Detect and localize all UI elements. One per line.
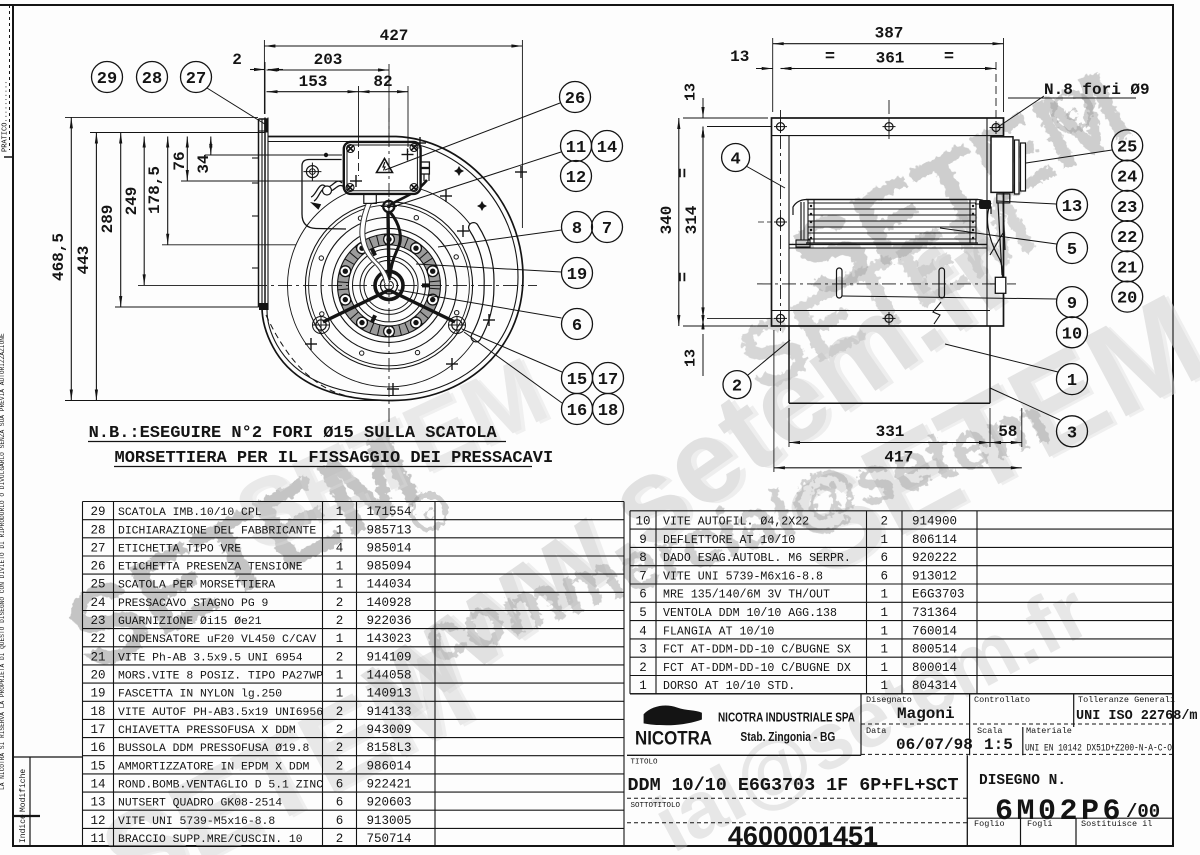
svg-text:806114: 806114 [912,533,957,547]
svg-text:13: 13 [682,83,699,101]
svg-text:=: = [675,168,694,178]
svg-text:314: 314 [683,205,701,234]
svg-text:22: 22 [90,632,105,646]
svg-text:N.B.:ESEGUIRE N°2 FORI Ø15 SUL: N.B.:ESEGUIRE N°2 FORI Ø15 SULLA SCATOLA [89,424,498,443]
svg-text:1: 1 [336,505,344,519]
svg-text:1: 1 [336,669,344,683]
svg-text:Foglio: Foglio [974,819,1005,829]
svg-text:23: 23 [90,614,105,628]
svg-text:24: 24 [90,596,105,610]
svg-text:361: 361 [876,50,905,68]
svg-text:11: 11 [90,832,105,846]
svg-text:1: 1 [880,643,888,657]
svg-text:17: 17 [598,371,618,390]
svg-text:DISEGNO N.: DISEGNO N. [979,773,1066,789]
svg-text:12: 12 [90,814,105,828]
svg-text:4: 4 [336,541,344,555]
svg-text:2: 2 [232,51,242,69]
svg-text:10: 10 [1062,325,1082,344]
svg-text:5: 5 [639,606,647,620]
svg-text:LA NICOTRA SI RISERVA LA PROPR: LA NICOTRA SI RISERVA LA PROPRIETA DI QU… [0,333,6,790]
svg-text:4: 4 [730,151,740,170]
svg-text:13: 13 [682,349,699,367]
svg-text:203: 203 [314,51,343,69]
svg-text:MORSETTIERA PER IL FISSAGGIO D: MORSETTIERA PER IL FISSAGGIO DEI PRESSAC… [115,449,554,468]
svg-text:2: 2 [336,832,344,846]
svg-text:922036: 922036 [367,614,412,628]
svg-text:26: 26 [90,560,105,574]
svg-text:1: 1 [336,687,344,701]
svg-text:10: 10 [635,515,650,529]
svg-text:Data: Data [866,726,886,736]
svg-text:985014: 985014 [367,541,412,555]
svg-text:4: 4 [639,624,647,638]
svg-text:ROND.BOMB.VENTAGLIO D 5.1 ZINC: ROND.BOMB.VENTAGLIO D 5.1 ZINC [118,780,323,792]
svg-text:VITE UNI 5739-M6x16-8.8: VITE UNI 5739-M6x16-8.8 [663,570,823,583]
svg-text:153: 153 [299,73,328,91]
svg-text:MORS.VITE 8 POSIZ. TIPO PA27WP: MORS.VITE 8 POSIZ. TIPO PA27WP [118,671,323,683]
svg-text:6: 6 [880,551,888,565]
svg-text:178,5: 178,5 [146,166,164,214]
svg-text:1:5: 1:5 [984,736,1013,754]
svg-text:1: 1 [880,661,888,675]
svg-text:1: 1 [880,588,888,602]
svg-text:AMMORTIZZATORE IN EPDM X DDM: AMMORTIZZATORE IN EPDM X DDM [118,761,310,773]
svg-text:SOTTOTITOLO: SOTTOTITOLO [631,802,681,810]
svg-text:6: 6 [880,569,888,583]
svg-text:13: 13 [90,796,105,810]
svg-text:6: 6 [639,588,647,602]
svg-text:NICOTRA INDUSTRIALE SPA: NICOTRA INDUSTRIALE SPA [718,711,855,725]
svg-text:1: 1 [336,560,344,574]
svg-text:DADO ESAG.AUTOBL. M6 SERPR.: DADO ESAG.AUTOBL. M6 SERPR. [663,552,851,565]
svg-text:249: 249 [123,187,141,216]
svg-text:DEFLETTORE AT 10/10: DEFLETTORE AT 10/10 [663,534,795,547]
svg-text:12: 12 [566,169,586,188]
svg-text:9: 9 [639,533,647,547]
svg-text:2: 2 [336,596,344,610]
svg-text:29: 29 [97,70,117,89]
svg-text:CHIAVETTA PRESSOFUSA X DDM: CHIAVETTA PRESSOFUSA X DDM [118,725,296,737]
svg-text:2: 2 [639,661,647,675]
svg-text:4600001451: 4600001451 [728,821,878,851]
svg-text:800514: 800514 [912,643,957,657]
svg-text:9: 9 [1067,295,1077,314]
svg-text:16: 16 [90,741,105,755]
svg-text:28: 28 [90,523,105,537]
svg-text:14: 14 [597,139,617,158]
svg-text:Fogli: Fogli [1027,819,1053,829]
svg-text:N.8 fori Ø9: N.8 fori Ø9 [1044,81,1150,99]
svg-text:20: 20 [90,669,105,683]
svg-text:17: 17 [90,723,105,737]
svg-text:UNI EN 10142 DX51D+Z200-N-A-C-: UNI EN 10142 DX51D+Z200-N-A-C-O [1025,743,1172,754]
svg-text:27: 27 [186,70,206,89]
svg-text:468,5: 468,5 [50,233,68,281]
svg-text:SCATOLA PER MORSETTIERA: SCATOLA PER MORSETTIERA [118,580,275,592]
svg-text:19: 19 [567,266,587,285]
svg-text:5: 5 [1067,241,1077,260]
svg-text:1: 1 [880,624,888,638]
svg-text:=: = [944,48,954,67]
svg-text:Tolleranze Generali: Tolleranze Generali [1078,695,1175,705]
svg-text:6: 6 [336,796,344,810]
svg-text:CONDENSATORE uF20 VL450 C/CAV: CONDENSATORE uF20 VL450 C/CAV [118,634,316,646]
svg-text:MRE 135/140/6M 3V TH/OUT: MRE 135/140/6M 3V TH/OUT [663,589,830,602]
svg-text:Magoni: Magoni [897,705,955,723]
svg-text:2: 2 [336,650,344,664]
svg-text:289: 289 [99,205,117,234]
svg-text:UNI ISO 22768/m: UNI ISO 22768/m [1076,709,1198,724]
svg-text:VITE AUTOF PH-AB3.5x19 UNI6956: VITE AUTOF PH-AB3.5x19 UNI6956 [118,707,323,719]
svg-text:417: 417 [884,449,913,467]
svg-text:Disegnato: Disegnato [866,695,912,705]
svg-text:3: 3 [1067,424,1077,443]
svg-text:PRESSACAVO STAGNO PG 9: PRESSACAVO STAGNO PG 9 [118,598,269,610]
svg-text:Materiale: Materiale [1026,726,1072,736]
svg-text:FCT AT-DDM-DD-10 C/BUGNE SX: FCT AT-DDM-DD-10 C/BUGNE SX [663,644,851,657]
svg-text:2: 2 [880,515,888,529]
svg-text:914109: 914109 [367,650,412,664]
svg-text:985094: 985094 [367,560,412,574]
svg-text:1: 1 [880,533,888,547]
svg-text:16: 16 [567,402,587,421]
svg-text:BRACCIO SUPP.MRE/CUSCIN. 10: BRACCIO SUPP.MRE/CUSCIN. 10 [118,834,303,846]
svg-text:25: 25 [1117,138,1137,157]
svg-text:FCT AT-DDM-DD-10 C/BUGNE DX: FCT AT-DDM-DD-10 C/BUGNE DX [663,662,851,675]
svg-text:443: 443 [75,246,93,275]
svg-text:18: 18 [90,705,105,719]
svg-text:760014: 760014 [912,624,957,638]
svg-text:13: 13 [1062,198,1082,217]
svg-text:VITE UNI 5739-M5x16-8.8: VITE UNI 5739-M5x16-8.8 [118,816,275,828]
svg-text:750714: 750714 [367,832,412,846]
svg-text:2: 2 [732,378,742,397]
svg-text:26: 26 [565,90,585,109]
svg-text:427: 427 [380,27,409,45]
svg-text:29: 29 [90,505,105,519]
svg-text:20: 20 [1117,290,1137,309]
svg-text:913012: 913012 [912,569,957,583]
svg-text:144034: 144034 [367,578,412,592]
svg-text:387: 387 [875,25,904,43]
svg-text:Sostituisce il: Sostituisce il [1081,819,1152,829]
svg-text:7: 7 [602,220,612,239]
svg-text:Scala: Scala [977,726,1003,736]
svg-text:8: 8 [572,220,582,239]
svg-text:340: 340 [658,206,676,235]
svg-text:=: = [675,272,694,282]
svg-text:7: 7 [639,569,647,583]
svg-text:PRATICO..........: PRATICO.......... [2,81,10,152]
svg-text:15: 15 [90,759,105,773]
svg-text:18: 18 [598,402,618,421]
svg-text:76: 76 [171,151,189,170]
svg-text:Modifiche: Modifiche [19,769,28,812]
svg-text:82: 82 [373,73,392,91]
svg-text:143023: 143023 [367,632,412,646]
svg-text:VITE AUTOFIL. Ø4,2X22: VITE AUTOFIL. Ø4,2X22 [663,516,809,529]
svg-text:21: 21 [90,650,105,664]
svg-text:06/07/98: 06/07/98 [896,736,973,754]
svg-text:VITE Ph-AB 3.5x9.5 UNI 6954: VITE Ph-AB 3.5x9.5 UNI 6954 [118,652,303,664]
svg-text:913005: 913005 [367,814,412,828]
svg-text:DORSO AT 10/10 STD.: DORSO AT 10/10 STD. [663,680,795,693]
svg-text:ETICHETTA TIPO VRE: ETICHETTA TIPO VRE [118,543,241,555]
svg-text:11: 11 [566,139,586,158]
svg-text:1: 1 [336,632,344,646]
svg-text:21: 21 [1117,259,1137,278]
svg-text:23: 23 [1117,199,1137,218]
svg-text:SCATOLA IMB.10/10 CPL: SCATOLA IMB.10/10 CPL [118,507,262,519]
svg-text:800014: 800014 [912,661,957,675]
svg-text:Stab. Zingonia - BG: Stab. Zingonia - BG [740,730,835,744]
svg-text:34: 34 [195,154,213,174]
svg-text:6: 6 [572,317,582,336]
svg-text:Indice: Indice [19,814,28,843]
svg-text:Controllato: Controllato [974,695,1030,705]
svg-text:NUTSERT QUADRO GK08-2514: NUTSERT QUADRO GK08-2514 [118,798,282,810]
svg-text:2: 2 [336,614,344,628]
svg-text:6: 6 [336,778,344,792]
svg-text:986014: 986014 [367,759,412,773]
svg-text:VENTOLA DDM 10/10 AGG.138: VENTOLA DDM 10/10 AGG.138 [663,607,837,620]
svg-text:GUARNIZIONE Øi15 Øe21: GUARNIZIONE Øi15 Øe21 [118,616,262,628]
svg-text:804314: 804314 [912,679,957,693]
svg-text:2: 2 [336,705,344,719]
svg-text:ETICHETTA PRESENZA TENSIONE: ETICHETTA PRESENZA TENSIONE [118,562,303,574]
svg-text:24: 24 [1117,169,1137,188]
svg-text:943009: 943009 [367,723,412,737]
svg-text:2: 2 [336,759,344,773]
svg-text:FASCETTA IN NYLON lg.250: FASCETTA IN NYLON lg.250 [118,689,282,701]
svg-text:DDM 10/10 E6G3703 1F 6P+FL+SCT: DDM 10/10 E6G3703 1F 6P+FL+SCT [628,775,959,796]
svg-text:144058: 144058 [367,669,412,683]
svg-text:3: 3 [639,643,647,657]
svg-text:NICOTRA: NICOTRA [635,729,712,750]
svg-text:13: 13 [730,48,749,66]
svg-text:14: 14 [90,778,105,792]
svg-text:28: 28 [142,70,162,89]
svg-text:15: 15 [567,371,587,390]
svg-text:=: = [825,48,835,67]
svg-text:TITOLO: TITOLO [631,759,659,767]
svg-text:6: 6 [336,814,344,828]
svg-text:920222: 920222 [912,551,957,565]
svg-text:1: 1 [336,523,344,537]
svg-text:914133: 914133 [367,705,412,719]
svg-text:2: 2 [336,723,344,737]
svg-text:19: 19 [90,687,105,701]
svg-text:58: 58 [998,423,1017,441]
svg-text:914900: 914900 [912,515,957,529]
svg-text:1: 1 [880,679,888,693]
svg-text:25: 25 [90,578,105,592]
svg-text:2: 2 [336,741,344,755]
svg-text:DICHIARAZIONE DEL FABBRICANTE: DICHIARAZIONE DEL FABBRICANTE [118,525,316,537]
svg-text:1: 1 [336,578,344,592]
svg-text:920603: 920603 [367,796,412,810]
svg-text:140928: 140928 [367,596,412,610]
svg-text:1: 1 [1067,372,1077,391]
svg-text:c: c [422,499,435,526]
svg-text:171554: 171554 [367,505,412,519]
svg-text:c: c [1065,97,1079,127]
svg-text:922421: 922421 [367,778,412,792]
svg-text:140913: 140913 [367,687,412,701]
svg-text:E6G3703: E6G3703 [912,588,965,602]
svg-text:27: 27 [90,541,105,555]
svg-text:985713: 985713 [367,523,412,537]
svg-text:1: 1 [880,606,888,620]
svg-text:8158L3: 8158L3 [367,741,412,755]
svg-text:1: 1 [639,679,647,693]
svg-text:8: 8 [639,551,647,565]
svg-text:731364: 731364 [912,606,957,620]
svg-text:BUSSOLA DDM PRESSOFUSA Ø19.8: BUSSOLA DDM PRESSOFUSA Ø19.8 [118,743,310,755]
svg-text:FLANGIA AT 10/10: FLANGIA AT 10/10 [663,625,774,638]
svg-text:331: 331 [876,423,905,441]
svg-text:22: 22 [1117,229,1137,248]
